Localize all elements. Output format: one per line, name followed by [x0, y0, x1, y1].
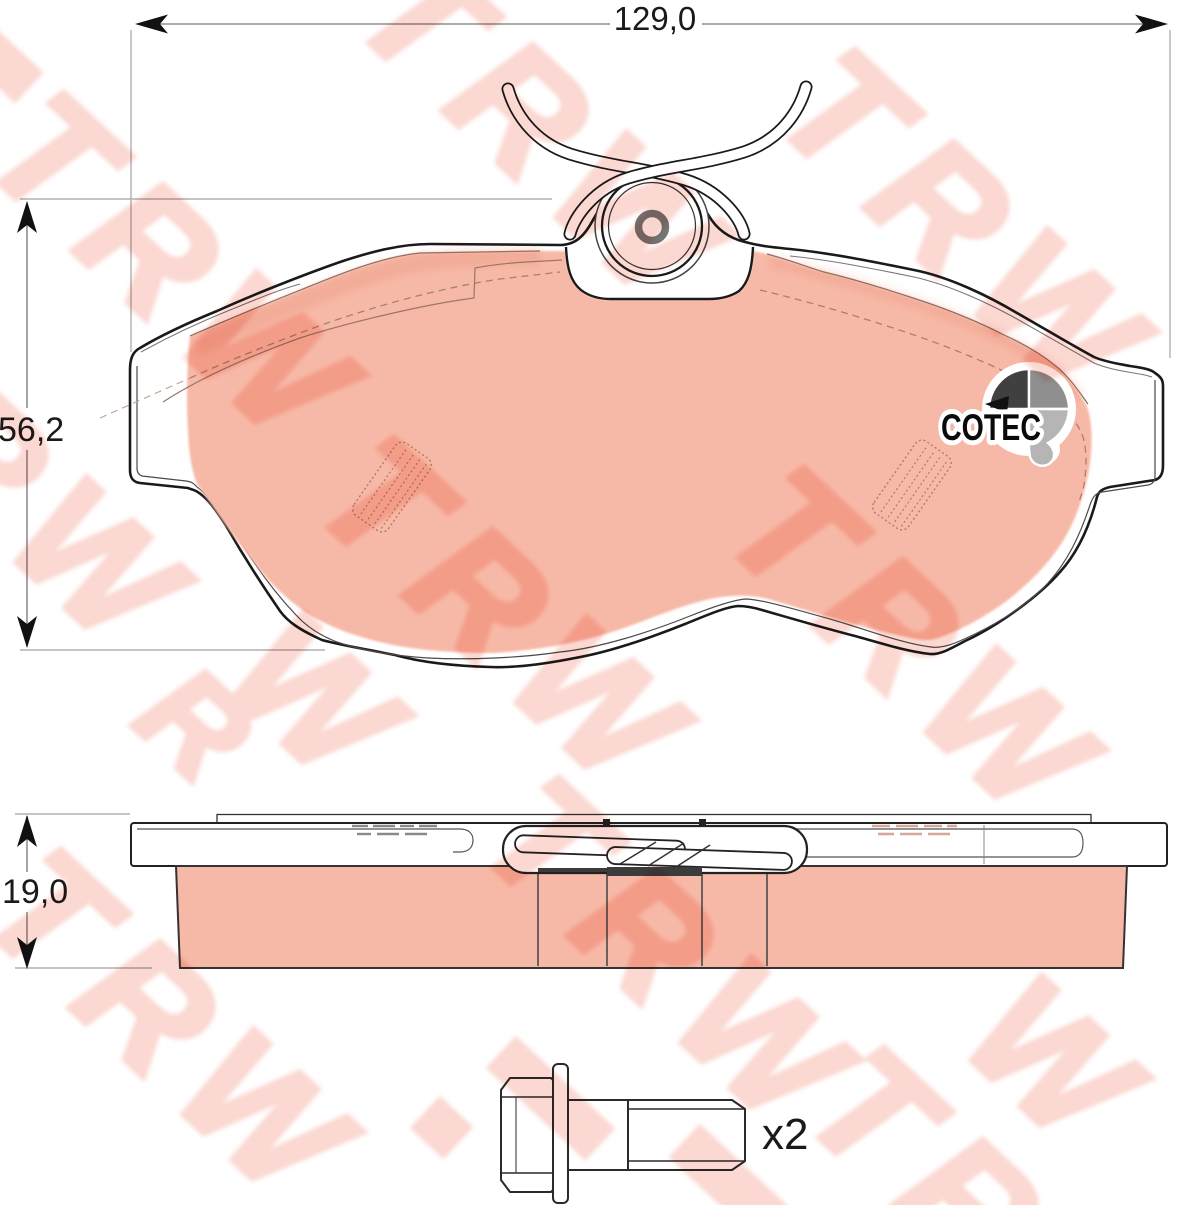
svg-text:TRW: TRW — [0, 814, 400, 1205]
svg-text:TRW: TRW — [325, 0, 773, 352]
svg-text:TRW: TRW — [695, 432, 1143, 867]
svg-text:TRW: TRW — [746, 14, 1180, 449]
